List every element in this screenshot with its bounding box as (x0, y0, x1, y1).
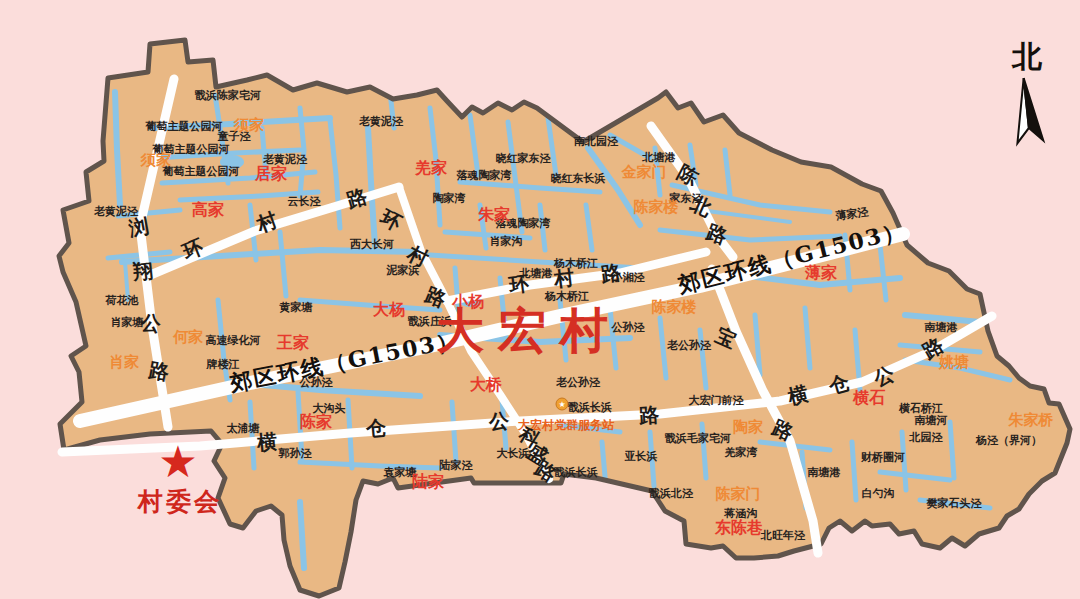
waterway-label: 西大长河 (350, 239, 394, 250)
road-name-char: 村 (553, 267, 575, 289)
waterway-label: 横石桥江 (899, 403, 943, 414)
road-name-char: 公 (871, 363, 897, 389)
waterway-label: 太浦塘 (227, 423, 260, 434)
waterway-label: 南塘河 (915, 415, 948, 426)
hamlet-label: 横石 (853, 390, 885, 406)
waterway-label: 北塘港 (643, 152, 676, 163)
road-name-char: 横 (786, 383, 810, 407)
waterway-label: 老黄泥泾 (359, 116, 403, 127)
waterway-label: 北园泾 (910, 432, 943, 443)
hamlet-label: 朱家桥 (1009, 413, 1054, 428)
waterway-label: 老黄泥泾 (263, 154, 307, 165)
waterway-label: 亚长浜 (625, 451, 658, 462)
road-name-char: 陈 (674, 161, 701, 188)
road-name-char: 翔 (132, 260, 154, 282)
waterway-label: 老公孙泾 (667, 340, 711, 351)
waterway-label: 高速绿化河 (206, 335, 261, 346)
waterway-label: 葡萄主题公园河 (163, 166, 240, 177)
road-name-label: 郊区环线（G1503） (228, 328, 462, 394)
hamlet-label: 朱家 (478, 207, 510, 223)
waterway-label: 老黄泥泾 (94, 206, 138, 217)
hamlet-label: 陈家楼 (652, 300, 697, 315)
hamlet-label: 陆家 (412, 474, 444, 490)
hamlet-label: 肖家 (109, 355, 139, 370)
waterway-label: 南塘港 (925, 322, 958, 333)
hamlet-label: 须家 (234, 118, 264, 133)
road-name-char: 横 (256, 431, 278, 453)
waterway-label: 杨泾（界河） (976, 435, 1042, 446)
hamlet-label: 大桥 (470, 377, 502, 393)
waterway-label: 白勺沟 (862, 488, 895, 499)
hamlet-label: 须家 (141, 153, 171, 168)
waterway-label: 蒋涵沟 (725, 508, 758, 519)
waterway-label: 戬浜长浜 (554, 467, 598, 478)
hamlet-label: 金家门 (622, 165, 667, 180)
waterway-label: 落魂陶家湾 (457, 170, 512, 181)
committee-star-icon: ★ (158, 440, 197, 484)
hamlet-label: 陶家 (733, 420, 763, 435)
waterway-label: 肖家塘 (111, 317, 144, 328)
waterway-label: 荷花池 (106, 295, 139, 306)
waterway-label: 戬浜毛家宅河 (665, 433, 731, 444)
waterway-label: 大宏门前泾 (689, 395, 744, 406)
waterway-label: 南塘港 (808, 467, 841, 478)
waterway-label: 陆家泾 (440, 460, 473, 471)
waterway-label: 肖家沟 (490, 236, 523, 247)
waterway-label: 老公孙泾 (556, 377, 600, 388)
hamlet-label: 何家 (173, 330, 203, 345)
road-name-char: 宝 (713, 325, 739, 351)
hamlet-label: 陈家 (300, 414, 332, 430)
road-name-char: 环 (508, 273, 530, 295)
road-name-char: 路 (638, 404, 659, 425)
road-name-char: 环 (377, 206, 404, 233)
waterway-label: 南北园泾 (574, 136, 618, 147)
waterway-label: 晓红东长浜 (551, 173, 606, 184)
waterway-label: 戬浜北泾 (649, 488, 693, 499)
hamlet-label: 陈家门 (716, 487, 761, 502)
road-name-char: 村 (254, 209, 280, 235)
waterway-label: 牌楼江 (207, 359, 240, 370)
waterway-label: 戬浜长浜 (568, 402, 612, 413)
village-map: 大宏村党群服务站戬浜陈家宅河葡萄主题公园河葡萄主题公园河葡萄主题公园河童子泾老黄… (0, 0, 1080, 599)
hamlet-label: 姚塘 (939, 355, 969, 370)
hamlet-label: 高家 (192, 202, 224, 218)
hamlet-label: 薄家 (805, 265, 837, 281)
waterway-label: 云长泾 (288, 196, 321, 207)
road-name-char: 浏 (127, 215, 150, 238)
village-title: 大宏村 (436, 299, 622, 363)
north-label: 北 (1012, 37, 1042, 78)
waterway-label: 樊家石头泾 (927, 498, 982, 509)
hamlet-label: 东陈巷 (715, 520, 763, 536)
waterway-label: 薄家泾 (835, 206, 869, 221)
waterway-label: 北旺年泾 (761, 530, 805, 541)
waterway-label: 晓红家东泾 (496, 153, 551, 164)
road-name-char: 公 (488, 410, 509, 431)
hamlet-label: 大杨 (373, 302, 405, 318)
hamlet-label: 王家 (277, 335, 309, 351)
waterway-label: 戬浜陈家宅河 (195, 90, 261, 101)
hamlet-label: 羌家 (415, 160, 447, 176)
road-name-char: 路 (704, 221, 730, 247)
road-name-char: 路 (770, 417, 796, 443)
waterway-label: 羌家湾 (725, 447, 758, 458)
hamlet-label: 陈家楼 (634, 200, 679, 215)
waterway-label: 黄家塘 (280, 302, 313, 313)
road-name-char: 路 (600, 262, 622, 284)
road-name-char: 路 (345, 186, 370, 211)
road-name-char: 环 (180, 236, 206, 262)
road-name-char: 仓 (827, 372, 852, 397)
road-name-char: 仓 (365, 417, 387, 439)
hamlet-label: 居家 (255, 166, 287, 182)
party-emblem-icon: ★ (556, 398, 569, 411)
waterway-label: 郭孙泾 (279, 448, 312, 459)
waterway-label: 财桥圈河 (861, 452, 905, 463)
road-name-char: 公 (140, 312, 162, 334)
waterway-label: 陶家湾 (433, 193, 466, 204)
committee-label: 村委会 (138, 485, 222, 518)
waterway-label: 葡萄主题公园河 (146, 121, 223, 132)
road-name-char: 路 (147, 359, 170, 382)
